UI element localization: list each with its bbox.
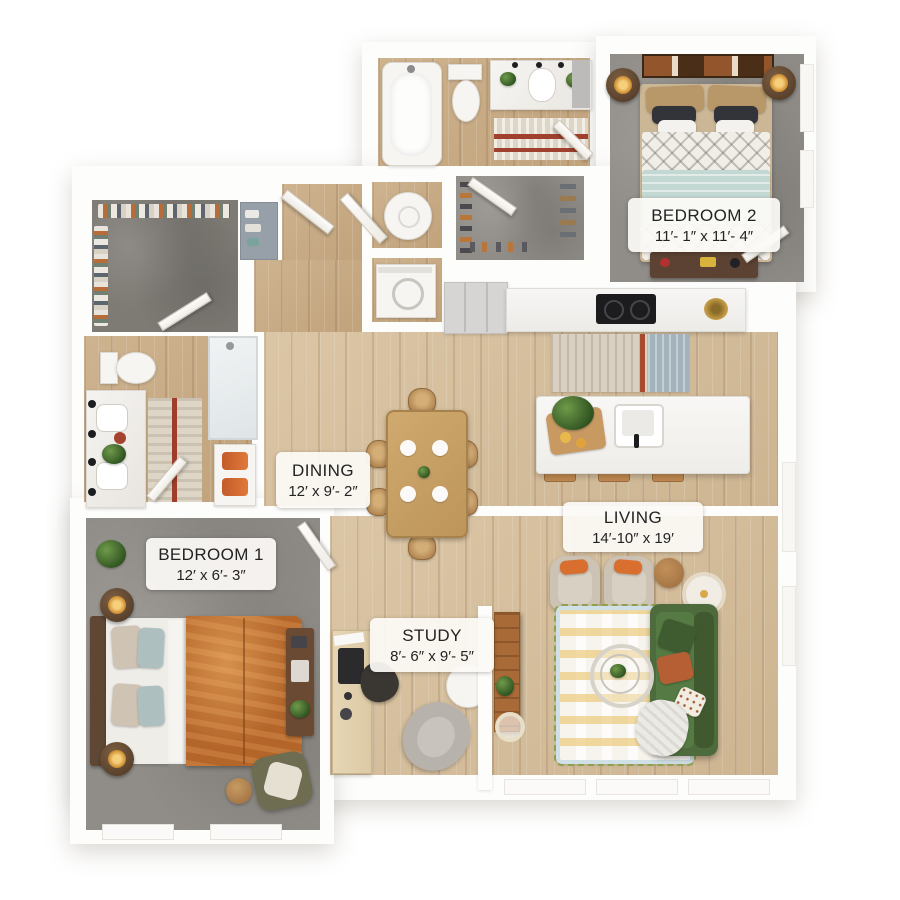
room-name: DINING — [292, 461, 354, 481]
water-heater-cap — [398, 206, 420, 228]
vanity-faucet — [512, 62, 518, 68]
vanity-faucet — [88, 430, 96, 438]
kitchen-rug-blue — [648, 334, 689, 392]
bed2-lamp — [614, 76, 632, 94]
room-name: BEDROOM 2 — [651, 206, 757, 226]
washer-door — [392, 278, 424, 310]
dresser-decor — [660, 258, 670, 267]
living-window — [596, 779, 678, 795]
plate — [400, 440, 416, 456]
island-plant — [552, 396, 594, 430]
room-dims: 14′-10″ x 19′ — [592, 530, 674, 547]
bathtub-faucet — [407, 65, 415, 73]
coffee-table-plant — [610, 664, 626, 678]
vanity-flower — [114, 432, 126, 444]
bedroom2-runner-rug — [642, 54, 774, 78]
living-window — [504, 779, 586, 795]
toilet-bowl — [452, 80, 480, 122]
desk-mug — [340, 708, 352, 720]
wall-mirror — [495, 712, 525, 742]
desk-mouse — [344, 692, 352, 700]
shower-head — [226, 342, 234, 350]
dresser-decor — [700, 257, 716, 267]
room-label-bedroom1: BEDROOM 1 12′ x 6′- 3″ — [146, 538, 276, 590]
kitchen-sink-gold — [704, 298, 728, 320]
vanity-faucet — [558, 62, 564, 68]
floor-plan: BEDROOM 2 11′- 1″ x 11′- 4″ DINING 12′ x… — [0, 0, 900, 900]
towel-orange — [222, 452, 248, 470]
console-decor — [291, 660, 309, 682]
island-faucet — [634, 434, 639, 448]
living-window — [688, 779, 770, 795]
cooktop-burner — [604, 300, 624, 320]
armchair-cushion — [558, 570, 592, 604]
room-label-living: LIVING 14′-10″ x 19′ — [563, 502, 703, 552]
island-basin — [622, 410, 654, 436]
toilet-tank — [448, 64, 482, 80]
armchair-cushion — [612, 570, 646, 604]
bedroom1-window — [102, 824, 174, 840]
vanity-plant — [500, 72, 516, 86]
cabinet-divider — [464, 282, 466, 332]
board-fruit — [576, 438, 586, 448]
vanity-faucet — [88, 458, 96, 466]
towel-orange — [222, 478, 248, 496]
room-label-study: STUDY 8′- 6″ x 9′- 5″ — [370, 618, 494, 672]
living-window — [782, 586, 796, 666]
bed1-lamp — [108, 750, 126, 768]
bedroom1-window — [210, 824, 282, 840]
console-plant — [290, 700, 310, 718]
table-centerpiece — [418, 466, 430, 478]
bed1-pillow-blue — [137, 627, 165, 668]
vanity-sink — [528, 68, 556, 102]
console-decor — [291, 636, 307, 648]
bed1-sheet-fold — [168, 618, 186, 764]
floor-lamp-bulb — [700, 590, 708, 598]
bed2-lamp — [770, 74, 788, 92]
closet-items — [470, 242, 530, 252]
shelf-items — [247, 238, 259, 246]
shelf-items — [245, 210, 259, 218]
shower — [208, 336, 258, 440]
vanity-faucet — [88, 488, 96, 496]
orange-pillow — [559, 559, 588, 575]
room-label-dining: DINING 12′ x 9′- 2″ — [276, 452, 370, 508]
room-name: LIVING — [604, 508, 662, 528]
room-dims: 11′- 1″ x 11′- 4″ — [655, 228, 753, 245]
entry-plant — [496, 676, 514, 696]
walkin-closet-floor — [92, 200, 238, 332]
vanity-sink — [96, 462, 128, 490]
living-window — [782, 462, 796, 552]
plate — [432, 486, 448, 502]
dresser-decor — [730, 258, 740, 268]
bedroom2-window — [800, 64, 814, 132]
room-name: BEDROOM 1 — [158, 545, 264, 565]
room-dims: 12′ x 9′- 2″ — [288, 483, 357, 500]
vanity-plant — [102, 444, 126, 464]
cabinet-divider — [486, 282, 488, 332]
kitchen-rug-stripe — [640, 334, 645, 392]
closet-clothes-rail — [98, 204, 230, 218]
bed1-headboard — [90, 616, 106, 766]
room-name: STUDY — [402, 626, 462, 646]
kitchen-cabinet-gray — [444, 282, 508, 334]
sofa-back — [694, 612, 714, 748]
bath-cabinet — [572, 60, 590, 108]
cooktop-burner — [630, 300, 650, 320]
bathtub-basin — [390, 72, 432, 156]
vanity-faucet — [88, 400, 96, 408]
toilet-bowl — [116, 352, 156, 384]
bedroom2-window — [800, 150, 814, 208]
side-table-wood — [654, 558, 684, 588]
bed1-lamp — [108, 596, 126, 614]
washer-panel — [378, 267, 432, 273]
bedroom1-plant — [96, 540, 126, 568]
bath1-rug-stripe — [172, 398, 177, 502]
vanity-faucet — [536, 62, 542, 68]
room-label-bedroom2: BEDROOM 2 11′- 1″ x 11′- 4″ — [628, 198, 780, 252]
shelf-items — [245, 224, 261, 232]
bed1-duvet-seam — [243, 618, 245, 764]
closet-clothes-rail — [94, 226, 108, 326]
board-fruit — [560, 432, 571, 443]
room-dims: 12′ x 6′- 3″ — [176, 567, 245, 584]
plate — [432, 440, 448, 456]
plate — [400, 486, 416, 502]
bed1-stool — [226, 778, 252, 804]
vanity-sink — [96, 404, 128, 432]
orange-pillow — [613, 559, 642, 575]
closet-items — [560, 184, 576, 244]
room-dims: 8′- 6″ x 9′- 5″ — [390, 648, 474, 665]
hallway-floor-lower — [254, 260, 362, 332]
bed1-pillow-blue — [137, 685, 165, 726]
